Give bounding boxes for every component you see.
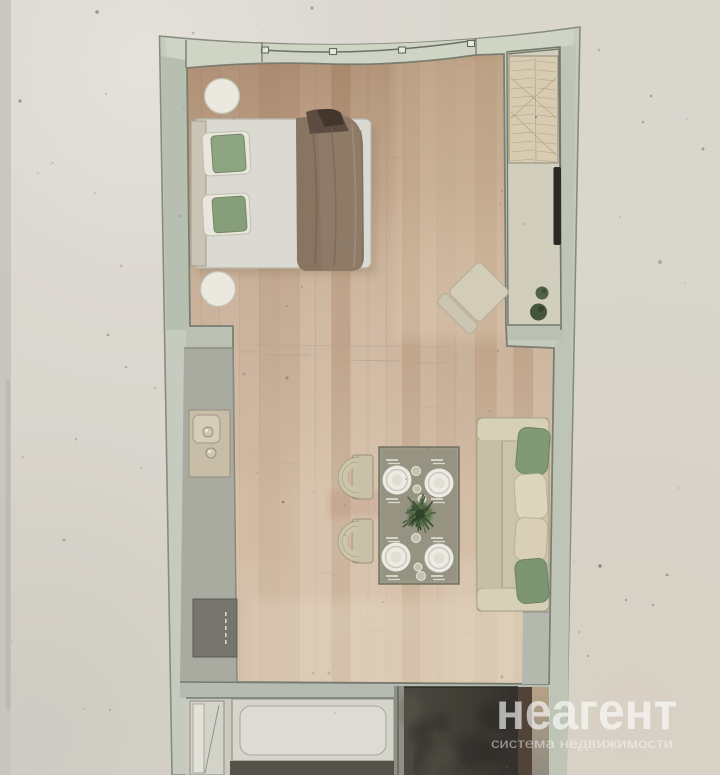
svg-text:система недвижимости: система недвижимости — [491, 736, 673, 751]
svg-text:неагент: неагент — [496, 683, 677, 741]
